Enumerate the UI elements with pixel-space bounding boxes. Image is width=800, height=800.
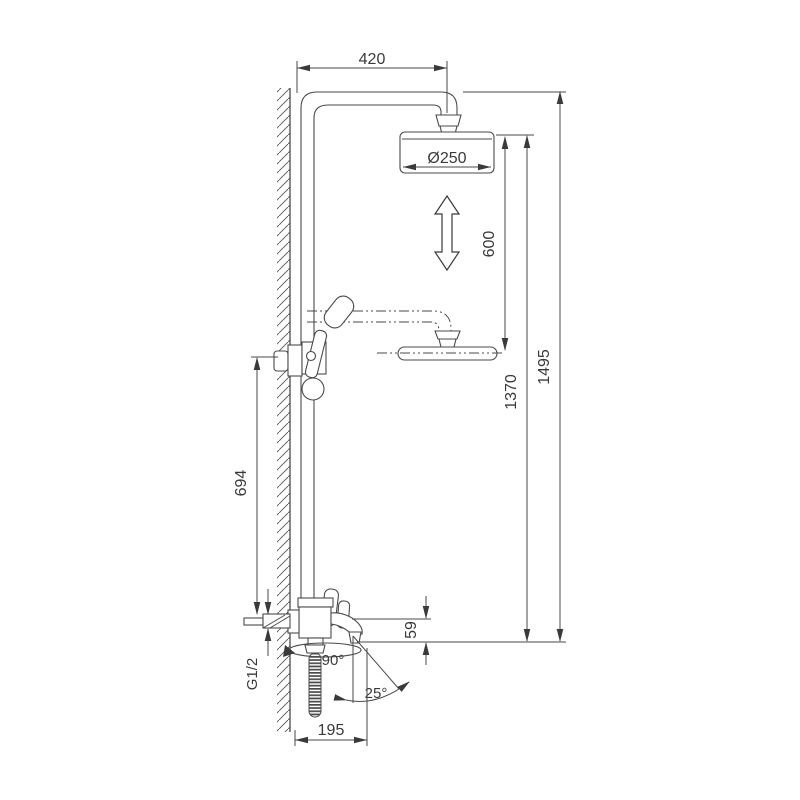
wall-section — [277, 88, 290, 732]
dim-head-height-lowered-label: 1370 — [503, 374, 520, 410]
holder-screw — [307, 352, 316, 361]
dim-arm-reach-label: 420 — [359, 51, 386, 68]
dim-spout-reach-label: 195 — [318, 722, 345, 739]
height-adjust-double-arrow-icon — [435, 196, 459, 270]
dim-arm-reach: 420 — [297, 51, 447, 113]
holder-wall-plate — [288, 345, 302, 376]
flexible-hose — [309, 653, 321, 717]
dim-head-diameter-label: Ø250 — [427, 150, 466, 167]
spout-outlet — [349, 632, 361, 643]
inlet-pipe-stub — [244, 618, 263, 625]
holder-ball-joint — [302, 378, 324, 400]
dim-holder-to-inlet-label: 694 — [233, 470, 250, 497]
dim-spout-swivel-label: 90° — [322, 652, 345, 669]
head-connector-nut-upper — [436, 115, 461, 126]
faucet-top-flange — [298, 598, 333, 607]
dim-total-height-label: 1495 — [536, 349, 553, 385]
drawing-svg: Ø250 — [0, 0, 800, 800]
overhead-shower-head: Ø250 — [400, 132, 494, 173]
dim-total-height: 1495 — [536, 92, 560, 641]
dim-spout-tilt-label: 25° — [365, 685, 388, 702]
dim-spout-drop-label: 59 — [403, 621, 420, 639]
dim-height-adjust-range-label: 600 — [481, 231, 498, 258]
dim-holder-to-inlet: 694 — [233, 357, 278, 614]
wall-hatching — [277, 88, 290, 732]
faucet-body — [299, 607, 331, 638]
shower-column-dimension-drawing: Ø250 — [0, 0, 800, 800]
holder-wall-knob — [274, 351, 288, 371]
phantom-connector-upper — [435, 331, 460, 339]
dim-inlet-thread: G1/2 — [244, 589, 268, 690]
hand-shower-head — [321, 292, 358, 331]
phantom-connector-lower — [439, 339, 456, 347]
dim-head-height-lowered: 1370 — [503, 136, 527, 641]
dim-spout-drop: 59 — [403, 596, 426, 665]
dim-inlet-thread-label: G1/2 — [244, 658, 261, 691]
mixer-faucet: 90° 25° — [244, 588, 409, 717]
